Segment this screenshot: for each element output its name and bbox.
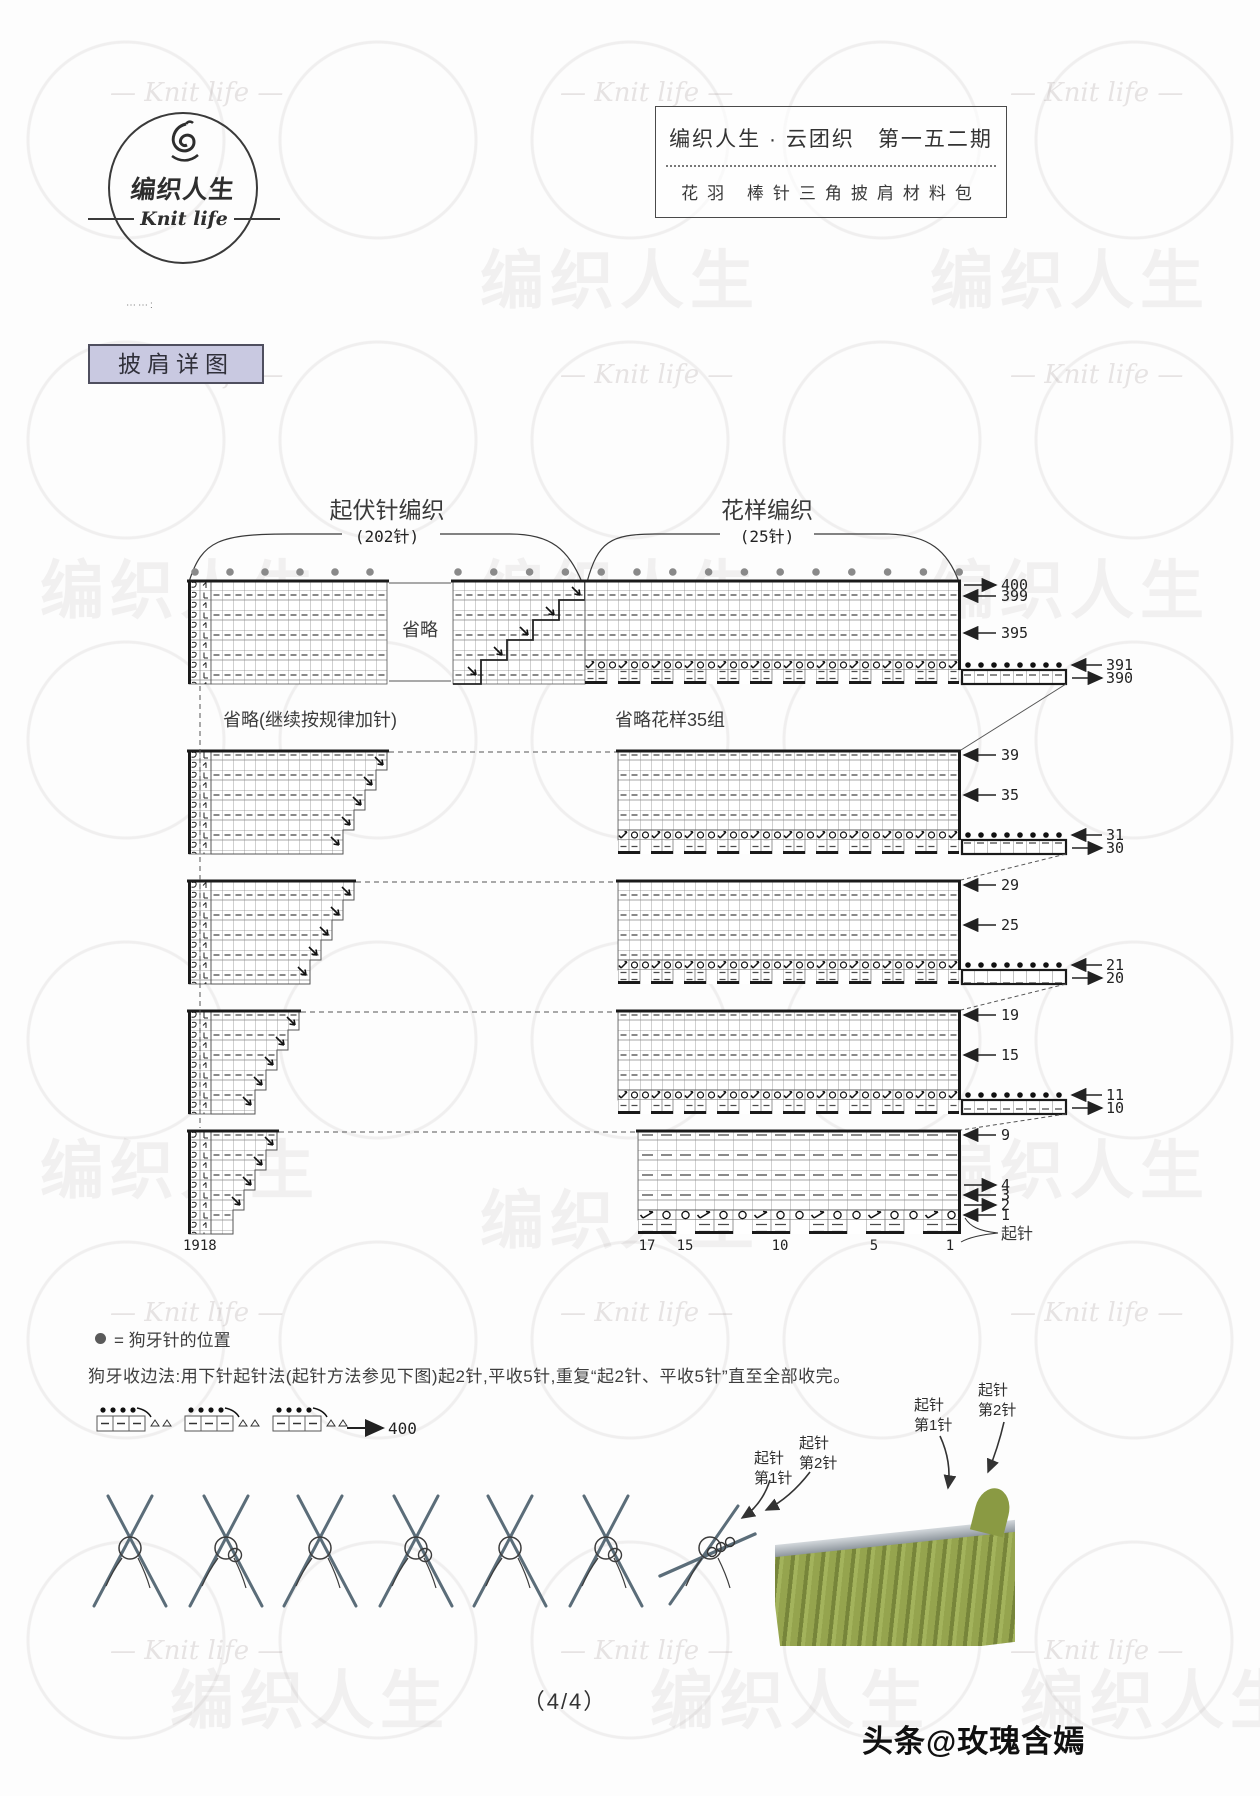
logo-line-right — [234, 218, 280, 220]
chart-section-1: 省略 — [187, 580, 1066, 684]
garter-section-title: 起伏针编织 — [330, 497, 445, 523]
issue-title: 编织人生 · 云团织 第一五二期 — [656, 123, 1006, 153]
stitch-number: 1 — [946, 1238, 954, 1254]
pattern-stitch-count: (25针) — [740, 527, 795, 546]
stitch-number: 1918 — [183, 1238, 217, 1254]
shawl-chart: 起伏针编织 (202针) 花样编织 (25针) 省略 — [90, 430, 1150, 1260]
strip-end-number: 400 — [388, 1419, 417, 1438]
row-number: 35 — [1001, 786, 1019, 804]
credit-watermark: 头条@玫瑰含嫣 — [862, 1716, 1085, 1761]
bottom-stitch-numbers: 1918 17 15 10 5 1 — [183, 1238, 954, 1254]
row-number: 399 — [1001, 587, 1028, 605]
arrow-first-stitch-drawing — [742, 1480, 770, 1518]
chart-braces: 起伏针编织 (202针) 花样编织 (25针) — [189, 497, 959, 582]
chart-section-2 — [187, 750, 1066, 854]
picot-legend: = 狗牙针的位置 — [95, 1326, 231, 1351]
cast-on-step-illustrations — [88, 1476, 788, 1638]
label-arrows-overlay — [690, 1380, 1110, 1540]
knit-life-logo: 编织人生 — [108, 112, 258, 264]
picot-legend-text: = 狗牙针的位置 — [114, 1326, 231, 1351]
omit-mid-label: 省略 — [402, 620, 438, 640]
chart-section-3 — [187, 880, 1066, 984]
chart-section-5 — [187, 1130, 961, 1234]
row-number: 1 — [1001, 1206, 1010, 1224]
row-number: 25 — [1001, 916, 1019, 934]
logo-band: Knit life — [88, 208, 280, 230]
logo-en-text: Knit life — [140, 208, 228, 230]
row-number: 30 — [1106, 839, 1124, 857]
kit-subtitle: 花羽 棒针三角披肩材料包 — [656, 179, 1006, 204]
header-dotted-divider — [666, 165, 996, 167]
bind-off-strip: 400 — [97, 1407, 417, 1438]
cast-on-label: 起针 — [1001, 1225, 1033, 1243]
arrow-second-stitch-photo — [988, 1422, 1004, 1472]
omit-right-label: 省略花样35组 — [615, 710, 725, 730]
logo-swirl-icon — [160, 120, 206, 170]
row-number: 10 — [1106, 1099, 1124, 1117]
row-number: 390 — [1106, 669, 1133, 687]
picot-dot-icon — [95, 1333, 106, 1344]
section-label-shawl-detail: 披肩详图 — [88, 344, 264, 384]
row-number: 20 — [1106, 969, 1124, 987]
stitch-number: 10 — [772, 1238, 789, 1254]
dots-note: ⋯⋯: — [126, 300, 155, 311]
row-number: 15 — [1001, 1046, 1019, 1064]
stitch-number: 5 — [870, 1238, 878, 1254]
row-number: 39 — [1001, 746, 1019, 764]
row-number: 29 — [1001, 876, 1019, 894]
logo-line-left — [88, 218, 134, 220]
arrow-second-stitch-drawing — [766, 1472, 810, 1510]
bind-off-strip-chart: 400 — [95, 1402, 435, 1450]
stitch-number: 17 — [639, 1238, 656, 1254]
issue-header-box: 编织人生 · 云团织 第一五二期 花羽 棒针三角披肩材料包 — [655, 106, 1007, 218]
row-number: 19 — [1001, 1006, 1019, 1024]
knitting-pattern-page: 编织人生编织人生编织人生编织人生编织人生编织人生编织人生编织人生编织人生编织人生… — [0, 0, 1260, 1796]
arrow-first-stitch-photo — [940, 1436, 949, 1488]
row-number: 395 — [1001, 624, 1028, 642]
logo-cn-text: 编织人生 — [106, 170, 260, 206]
page-number: （4/4） — [430, 1684, 700, 1716]
stitch-number: 15 — [677, 1238, 694, 1254]
pattern-section-title: 花样编织 — [721, 497, 813, 523]
omit-left-label: 省略(继续按规律加针) — [223, 710, 397, 730]
garter-stitch-count: (202针) — [355, 527, 419, 546]
chart-section-4 — [187, 1010, 1066, 1114]
row-number: 9 — [1001, 1126, 1010, 1144]
